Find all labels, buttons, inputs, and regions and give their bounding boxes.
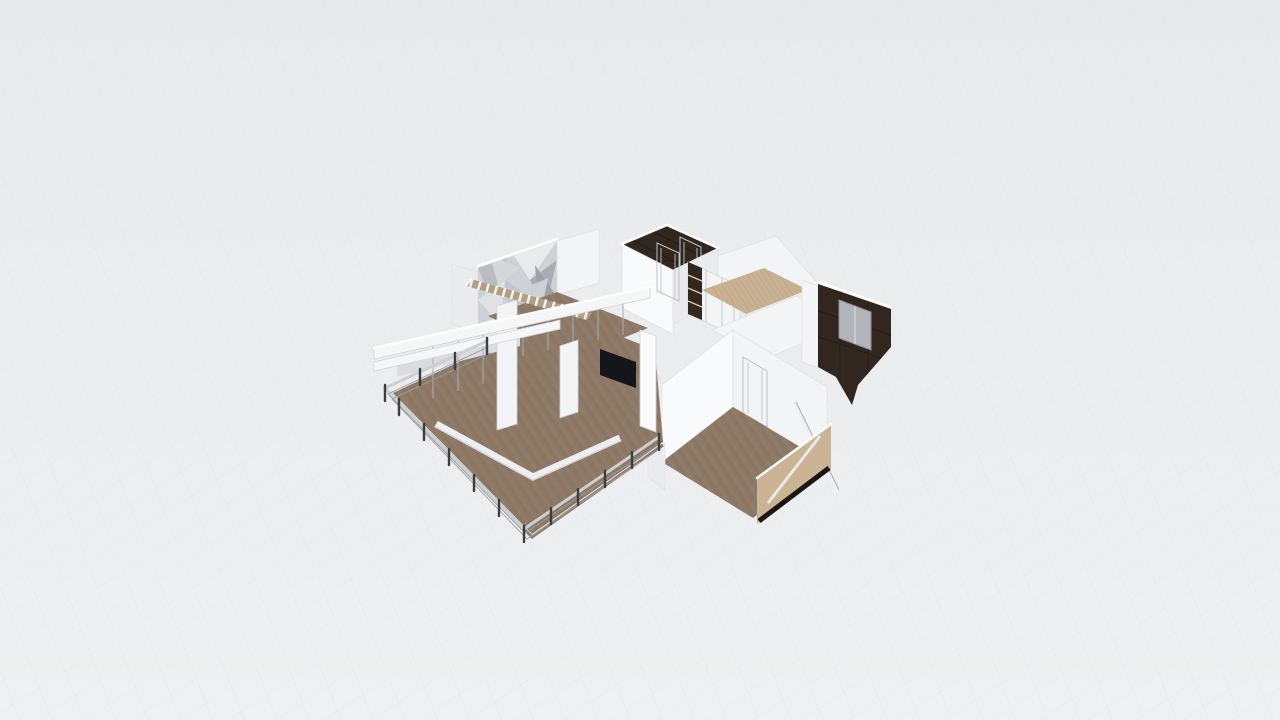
bathroom-side-wall [802,280,818,368]
floorplan-3d-viewport[interactable] [0,0,1280,720]
left-outer-wall [452,264,478,332]
floorplan-3d-render [0,0,1280,720]
column [640,330,656,432]
marble-room-right-wall [557,229,599,295]
column [560,340,578,418]
